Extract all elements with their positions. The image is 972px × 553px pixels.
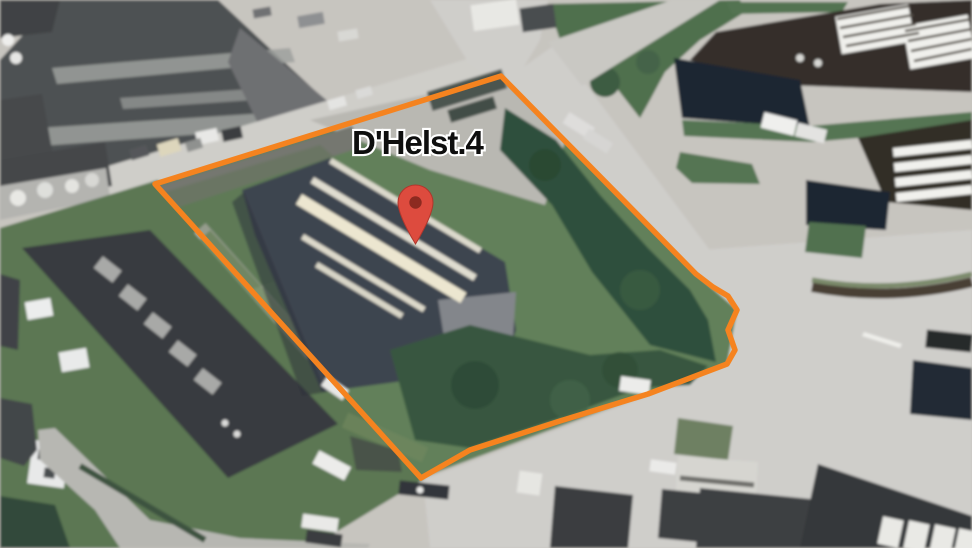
svg-text:D'Helst.4: D'Helst.4 (352, 124, 485, 161)
